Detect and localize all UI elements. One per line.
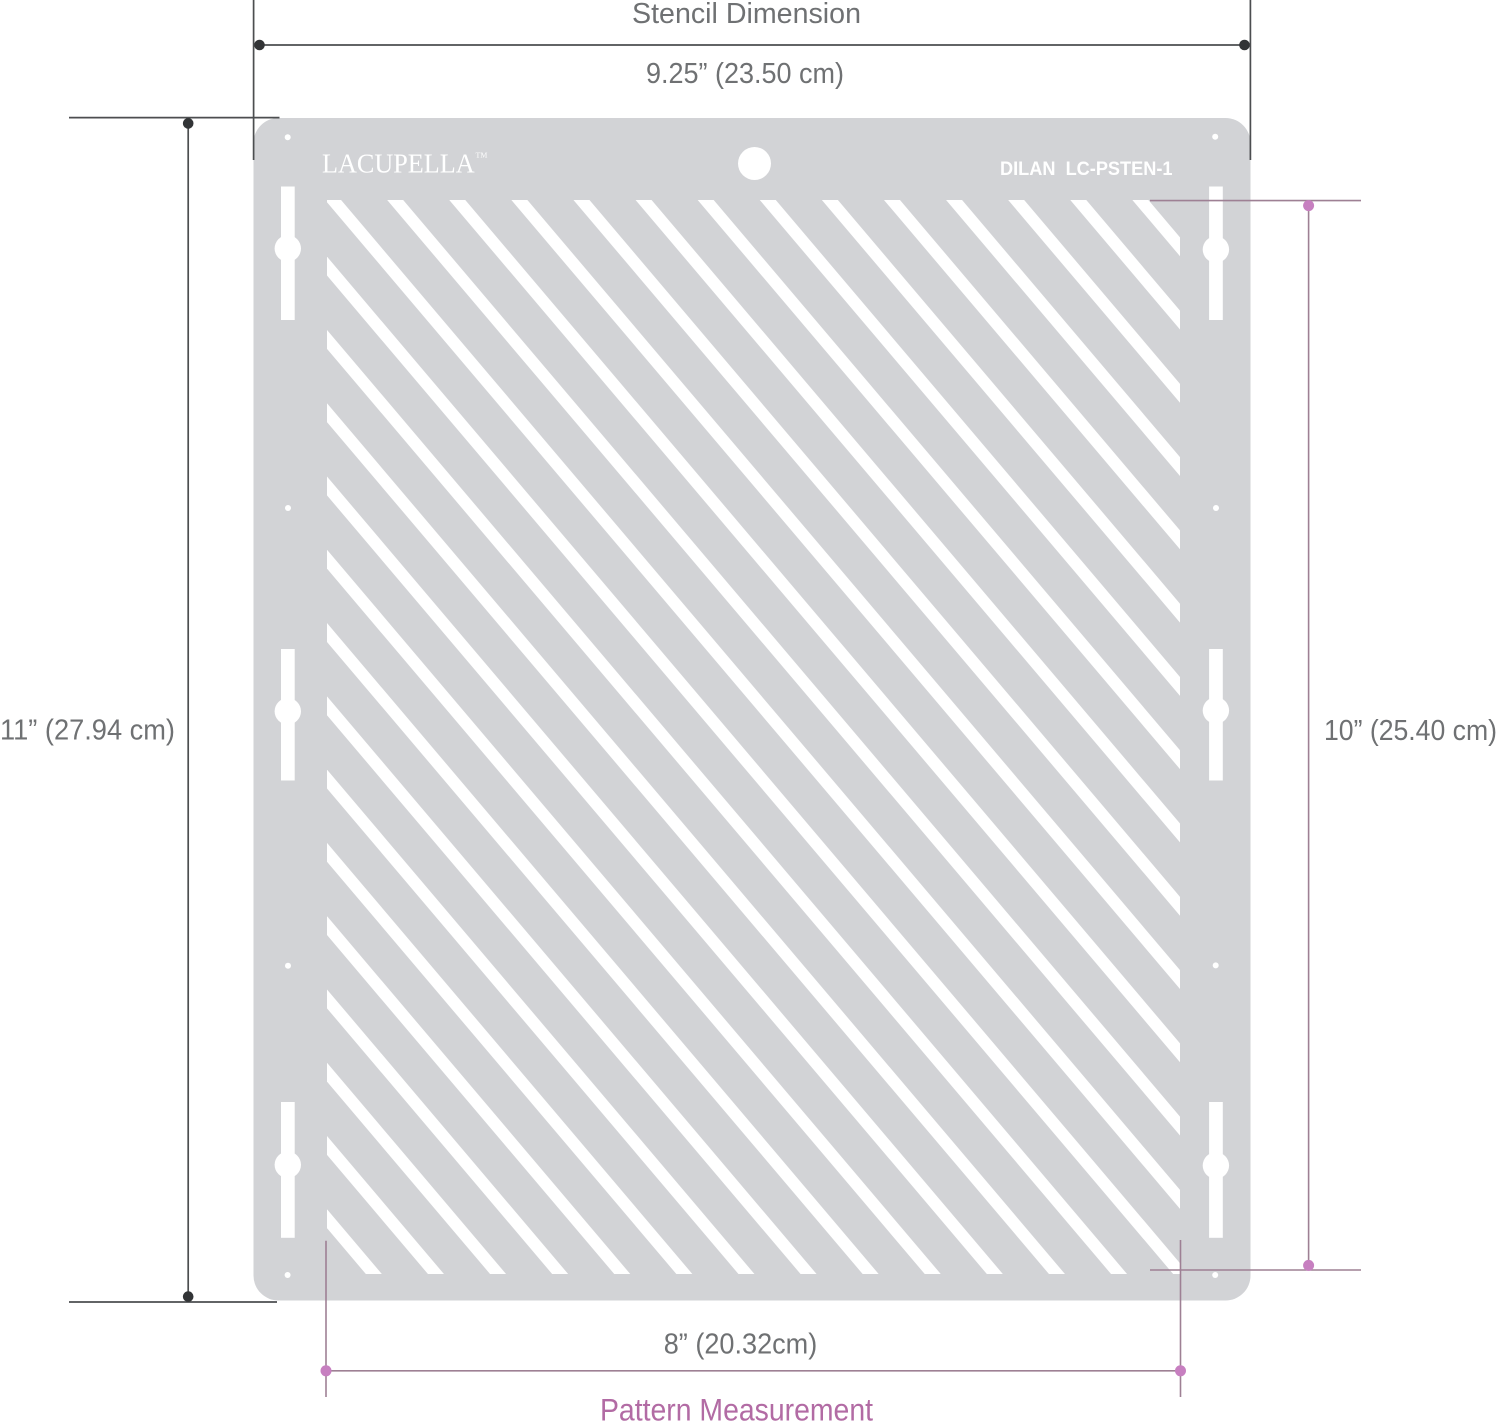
svg-text:10” (25.40 cm): 10” (25.40 cm) (1324, 715, 1497, 747)
svg-text:DILAN LC-PSTEN-1: DILAN LC-PSTEN-1 (1000, 158, 1173, 180)
svg-text:8” (20.32cm): 8” (20.32cm) (664, 1329, 818, 1361)
svg-text:™: ™ (475, 149, 488, 164)
svg-text:9.25” (23.50 cm): 9.25” (23.50 cm) (646, 58, 844, 90)
svg-text:LACUPELLA: LACUPELLA (322, 148, 475, 178)
svg-text:Stencil Dimension: Stencil Dimension (632, 0, 861, 30)
svg-text:11” (27.94 cm): 11” (27.94 cm) (0, 715, 175, 747)
svg-text:Pattern Measurement: Pattern Measurement (600, 1392, 873, 1426)
